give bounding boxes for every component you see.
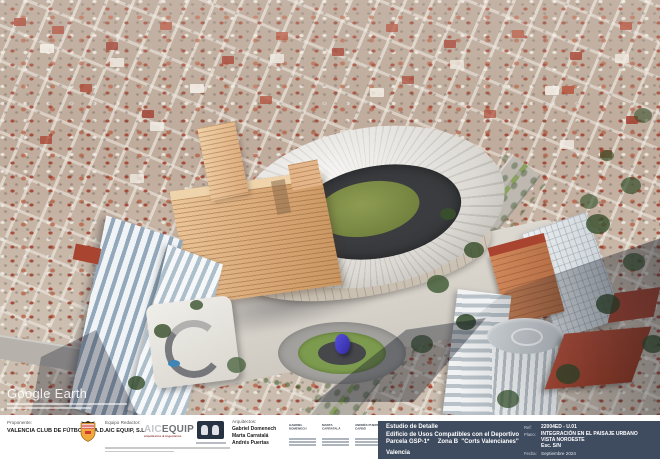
pool <box>168 360 180 367</box>
google-earth-watermark: Google Earth <box>7 386 87 401</box>
signature-stamp: GABRIEL DOMENECH <box>289 424 318 448</box>
fine-print <box>105 447 230 454</box>
tree-cluster <box>440 208 456 220</box>
aic-logo-part2: EQUIP <box>162 424 194 435</box>
architect-name: Gabriel Domenech <box>232 426 276 433</box>
blue-sculpture <box>335 334 350 354</box>
proponente-label: Proponente: <box>7 420 32 425</box>
architect-name: Andrés Puertas <box>232 440 276 447</box>
architects-college-seal-icon <box>197 421 224 439</box>
left-red-roof <box>73 243 102 264</box>
project-info-block: Estudio de Detalle Edificio de Usos Comp… <box>378 421 660 459</box>
arquitectos-label: Arquitectos: <box>232 419 256 424</box>
plano-scale: Esc. S/N <box>541 443 561 449</box>
project-line-3: Parcela GSP-1* Zona B "Corts Valencianes… <box>386 439 519 447</box>
valencia-cf-badge-icon <box>80 421 96 442</box>
imagery-attribution <box>7 403 127 411</box>
city-buildings-texture <box>40 44 54 53</box>
fecha-value: Septiembre 2024 <box>541 451 576 456</box>
tree-cluster <box>600 150 614 161</box>
city-roofs-texture <box>14 18 26 26</box>
plano-label: Plano: <box>524 432 536 437</box>
title-block: Proponente: VALENCIA CLUB DE FÚTBOL, S.A… <box>0 415 660 463</box>
aic-logo-part1: AIC <box>144 424 162 435</box>
ref-value: 22004ED - U.01 <box>541 424 577 430</box>
architect-names: Gabriel Domenech Marta Carratalá Andrés … <box>232 426 276 447</box>
equipo-redactor-label: Equipo Redactor: <box>105 420 141 425</box>
plan-sheet: Google Earth Proponente: VALENCIA CLUB D… <box>0 0 660 463</box>
project-line-1: Estudio de Detalle <box>386 424 519 432</box>
signature-stamp: MARTA CARRATALÁ <box>322 424 351 448</box>
fecha-label: Fecha: <box>524 451 537 456</box>
architect-name: Marta Carratalá <box>232 433 276 440</box>
ref-label: Ref: <box>524 425 532 430</box>
equipo-redactor-name: AIC EQUIP, S.L. <box>105 428 146 434</box>
project-title: Estudio de Detalle Edificio de Usos Comp… <box>386 424 519 457</box>
aerial-city-view: Google Earth <box>0 0 660 415</box>
tree-cluster <box>190 300 203 310</box>
project-line-4: Valencia <box>386 450 519 458</box>
seal-caption <box>196 442 226 444</box>
project-line-2: Edificio de Usos Compatibles con el Depo… <box>386 432 519 440</box>
